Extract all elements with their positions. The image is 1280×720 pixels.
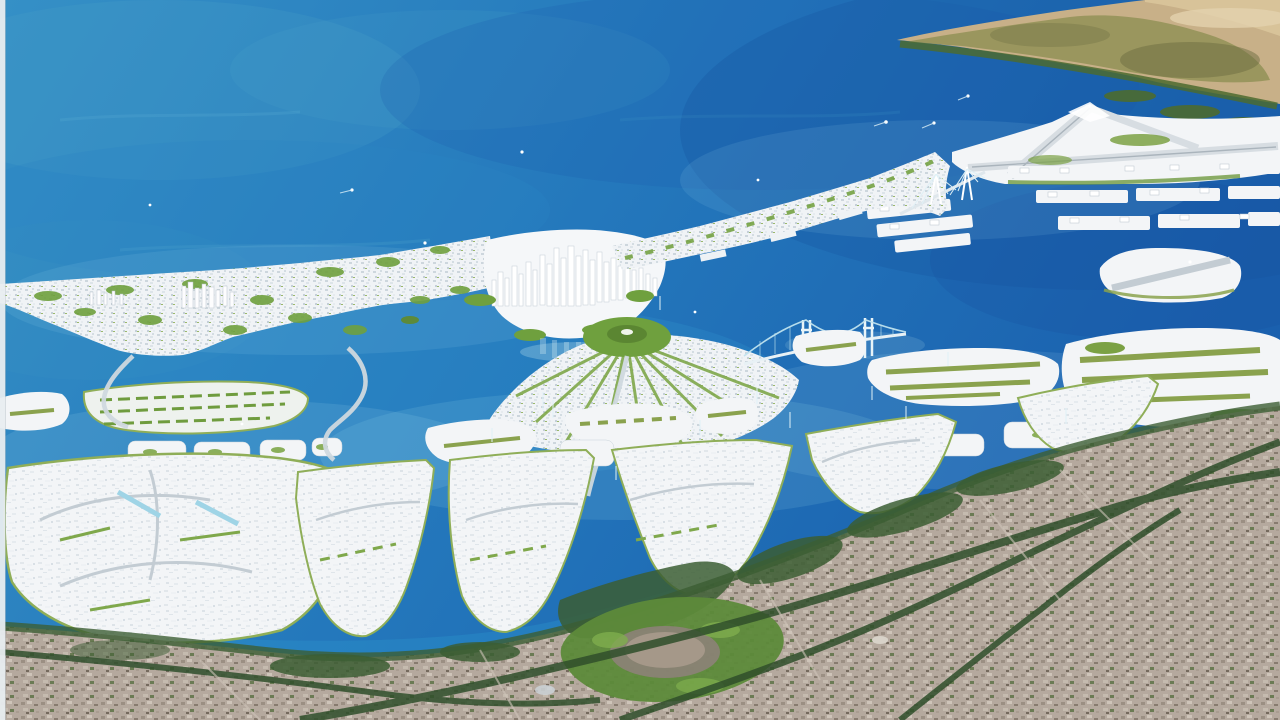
headland-scrub (990, 23, 1110, 47)
green-islet (401, 316, 419, 324)
scene (0, 0, 1280, 720)
reclamation-island (5, 454, 344, 643)
scan-border (0, 0, 6, 720)
aerial-rendering (0, 0, 1280, 720)
landmark-roof (872, 636, 888, 644)
island-park (1085, 342, 1125, 354)
landmark-roof (535, 685, 555, 695)
left-border-edge (0, 0, 5, 720)
airport-green-strip (1028, 155, 1072, 165)
left-border-line (5, 0, 6, 720)
airport-green-strip (1110, 134, 1170, 146)
apex-monument (621, 329, 633, 335)
headland-scrub (1120, 42, 1260, 78)
